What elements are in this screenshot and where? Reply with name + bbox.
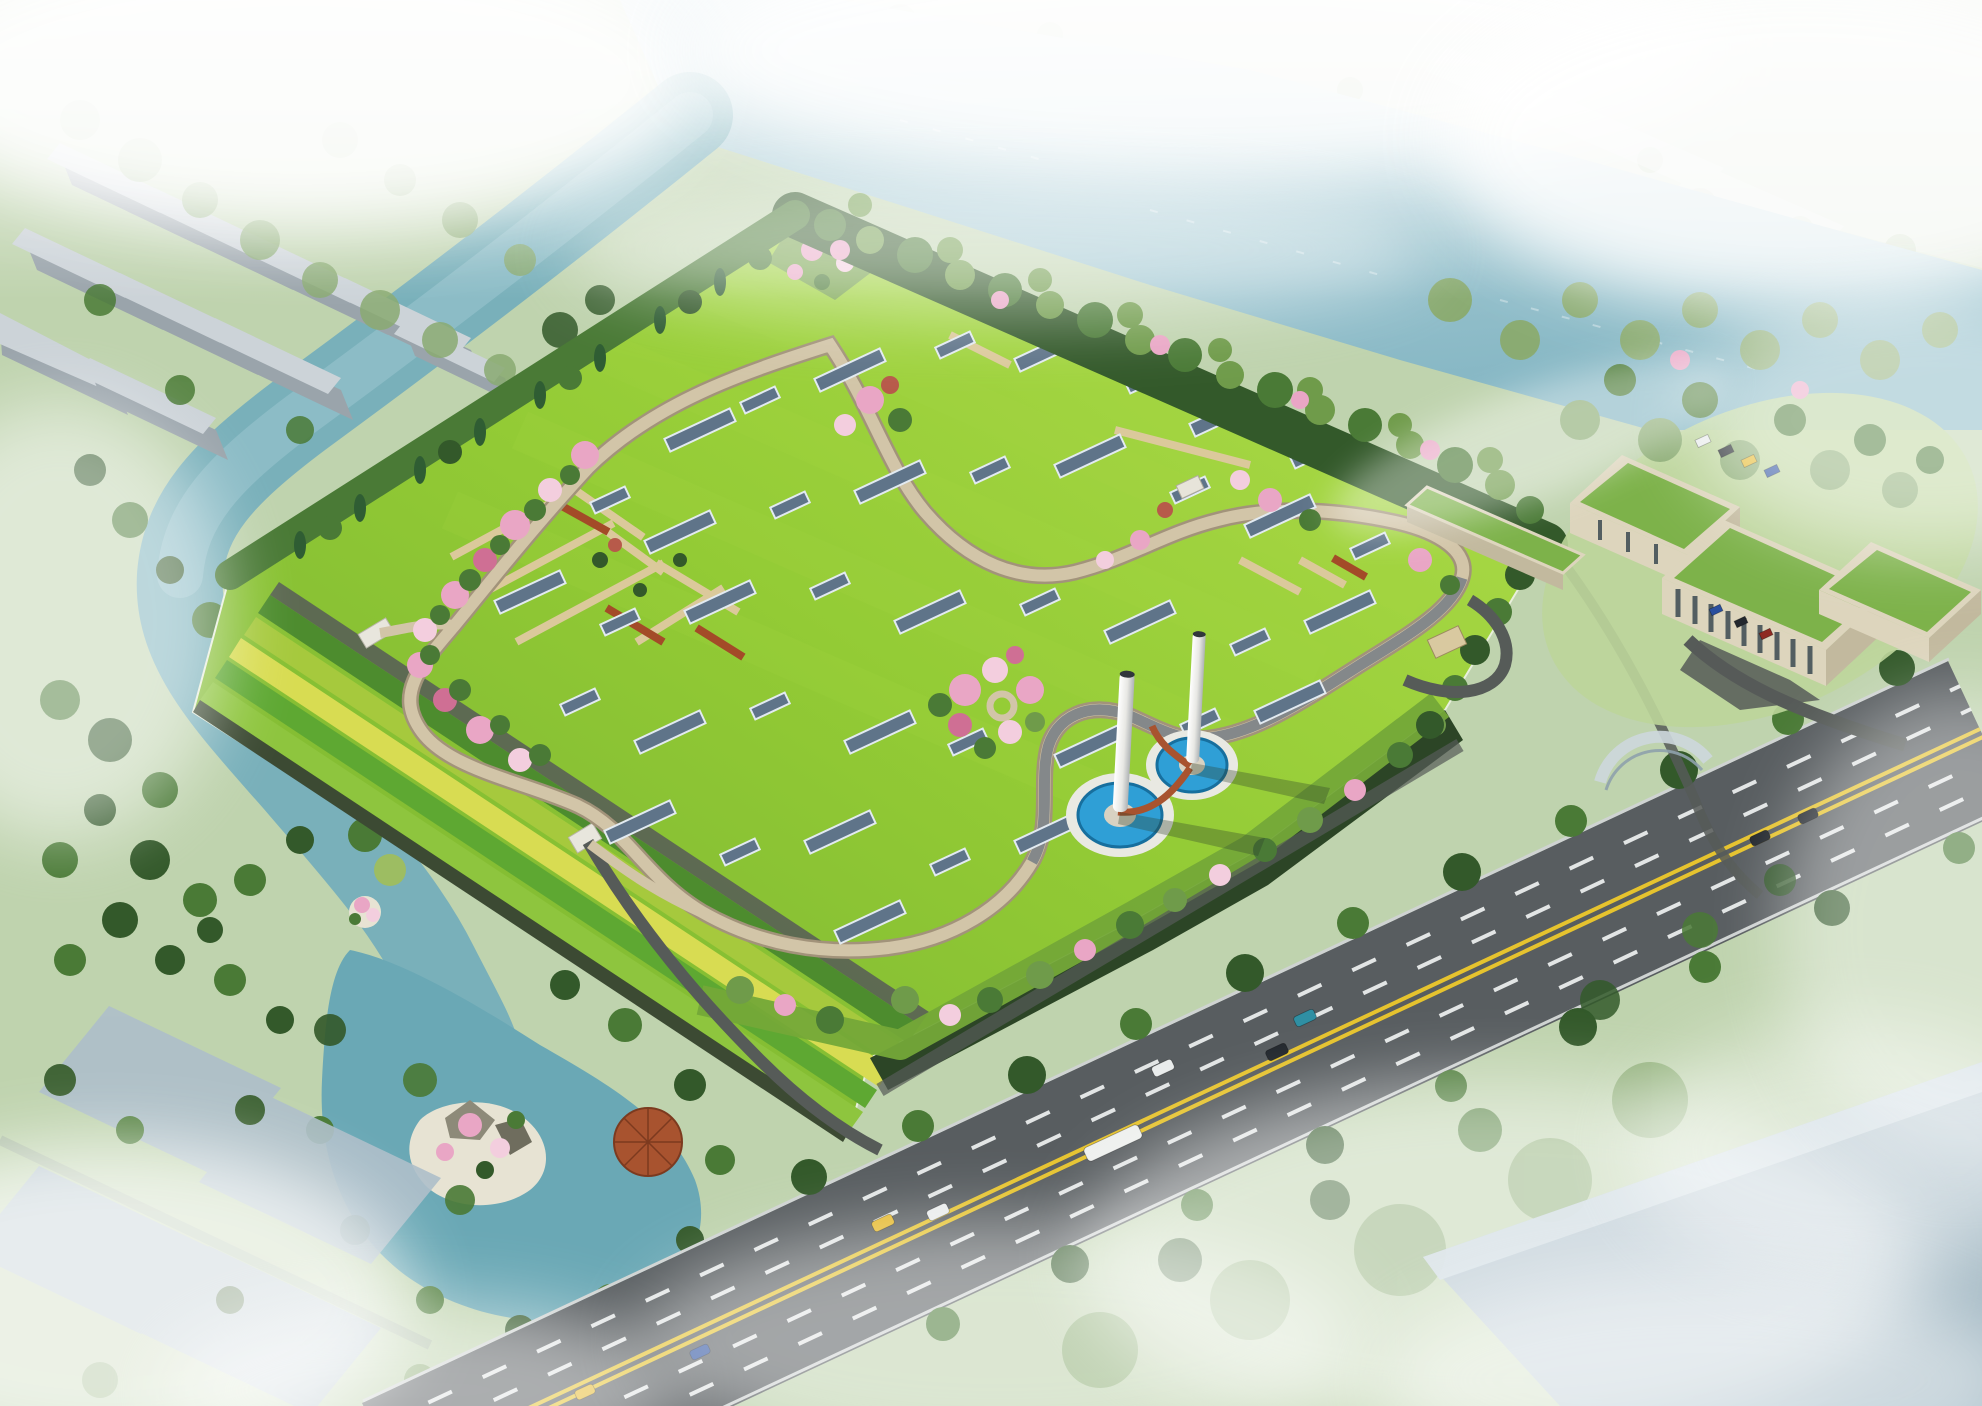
rendering-canvas: Aerial architectural rendering of a rive… <box>0 0 1982 1406</box>
red-deck-planks <box>614 1108 682 1176</box>
aerial-rendering: Aerial architectural rendering of a rive… <box>0 0 1982 1406</box>
blossom-islet <box>349 896 381 928</box>
